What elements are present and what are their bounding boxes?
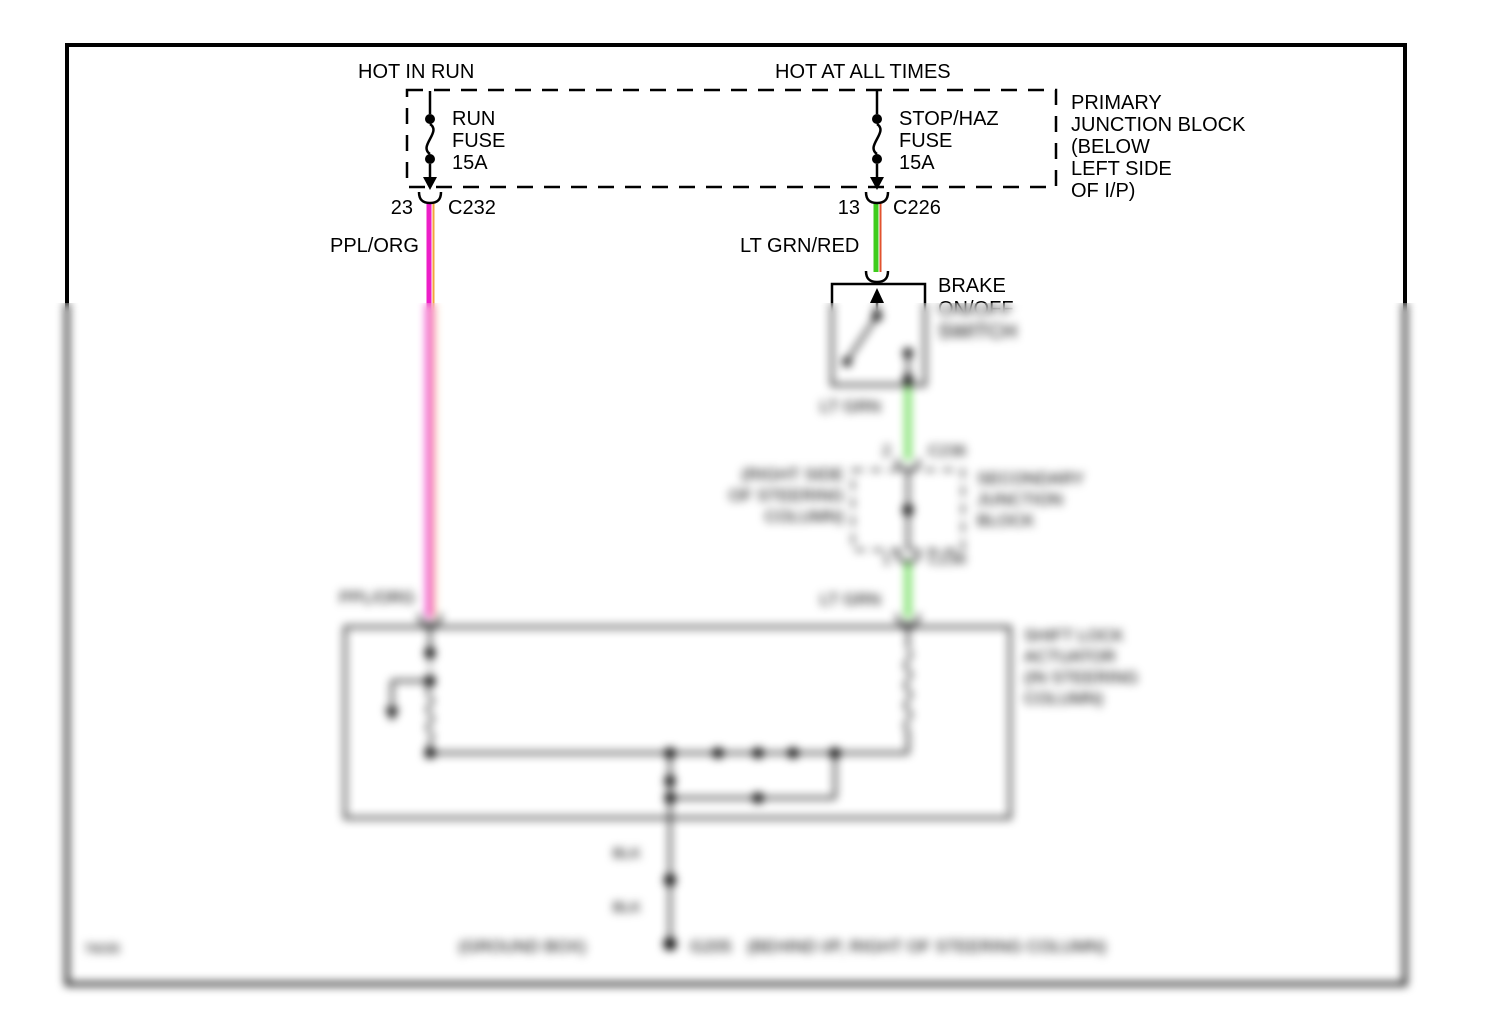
wire-ppl-org (429, 203, 434, 618)
connector-cup-icon (419, 192, 441, 203)
diagram-id-label: 76035 (84, 941, 120, 957)
shift-lock-actuator-label: SHIFT LOCK ACTUATOR (IN STEERING COLUMN) (1024, 625, 1138, 709)
wiring-diagram-page: HOT IN RUN HOT AT ALL TIMES RUN FUSE 15A… (0, 0, 1500, 1024)
blk-wire-label-2: BLK (613, 899, 641, 917)
stop-haz-fuse-label: STOP/HAZ FUSE 15A (899, 108, 999, 174)
arrow-down-icon (423, 177, 437, 190)
primary-junction-block-label: PRIMARY JUNCTION BLOCK (BELOW LEFT SIDE … (1071, 92, 1245, 202)
secondary-junction-block-symbol (853, 459, 963, 562)
brake-switch-symbol (832, 271, 925, 385)
c232-connector-label: C232 (448, 197, 496, 219)
ground-id-label: G205 (690, 936, 732, 957)
ground-location-label: (BEHIND I/P, RIGHT OF STEERING COLUMN) (747, 936, 1106, 957)
arrow-down-icon (385, 708, 399, 721)
ground-wire-symbol (664, 818, 677, 951)
run-fuse-label: RUN FUSE 15A (452, 108, 505, 174)
connector-cup-icon (897, 459, 919, 470)
c226-connector-label: C226 (893, 197, 941, 219)
ppl-org-wire-label: PPL/ORG (330, 235, 419, 257)
arrow-up-icon (870, 288, 884, 303)
hot-at-all-times-label: HOT AT ALL TIMES (775, 61, 951, 83)
shift-lock-actuator-symbol (345, 614, 1010, 818)
sjb-connector-out-label: C236 (928, 550, 966, 570)
sjb-location-label: (RIGHT SIDE OF STEERING COLUMN) (729, 464, 844, 527)
ground-box-label: (GROUND BOX) (459, 936, 587, 957)
sjb-connector-in-label: C236 (928, 442, 966, 462)
wire-lt-grn-red (876, 203, 881, 272)
ground-dot-icon (664, 938, 677, 951)
brake-switch-label: BRAKE ON/OFF SWITCH (938, 275, 1017, 344)
sjb-pin-in-label: 2 (882, 442, 891, 462)
sjb-pin-out-label: 1 (882, 550, 891, 570)
blk-wire-label-1: BLK (613, 845, 641, 863)
sjb-name-label: SECONDARY JUNCTION BLOCK (977, 468, 1084, 531)
ppl-org-wire-label-2: PPL/ORG (339, 587, 415, 608)
c232-pin-label: 23 (391, 197, 413, 219)
lt-grn-wire-label-2: LT GRN (820, 589, 881, 610)
splice-dot-icon (664, 874, 676, 886)
connector-cup-icon (866, 192, 888, 203)
lt-grn-red-wire-label: LT GRN/RED (740, 235, 859, 257)
connector-cup-icon (866, 271, 888, 282)
lt-grn-wire-label-1: LT GRN (820, 396, 881, 417)
c226-pin-label: 13 (838, 197, 860, 219)
hot-in-run-label: HOT IN RUN (358, 61, 474, 83)
